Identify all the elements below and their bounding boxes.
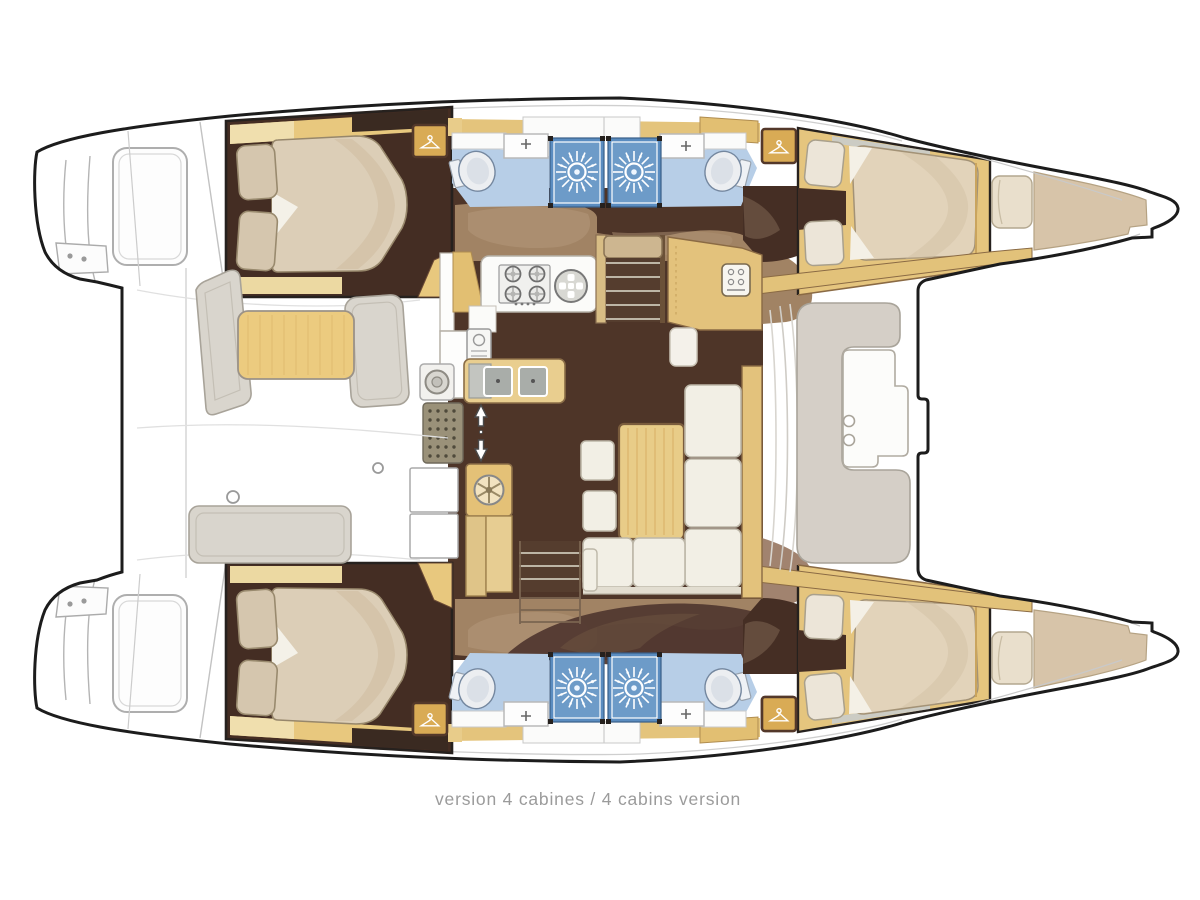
svg-text:version 4 cabines / 4 cabins: version 4 cabines / 4 cabins version — [435, 789, 741, 809]
